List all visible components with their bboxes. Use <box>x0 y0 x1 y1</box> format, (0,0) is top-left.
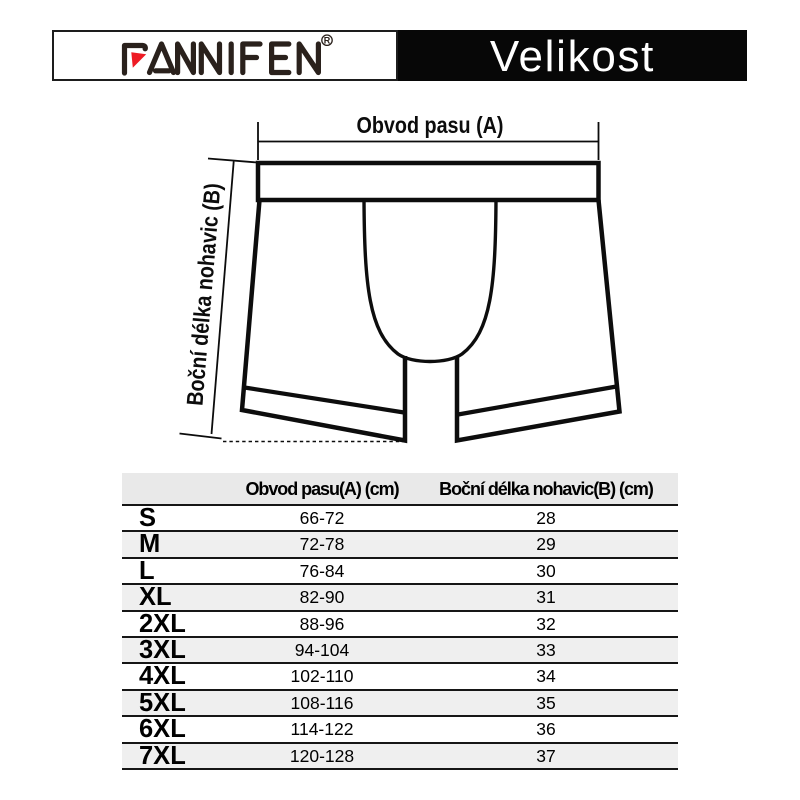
svg-text:Obvod pasu (A): Obvod pasu (A) <box>357 112 504 138</box>
svg-text:Boční délka nohavic (B): Boční délka nohavic (B) <box>181 182 225 406</box>
